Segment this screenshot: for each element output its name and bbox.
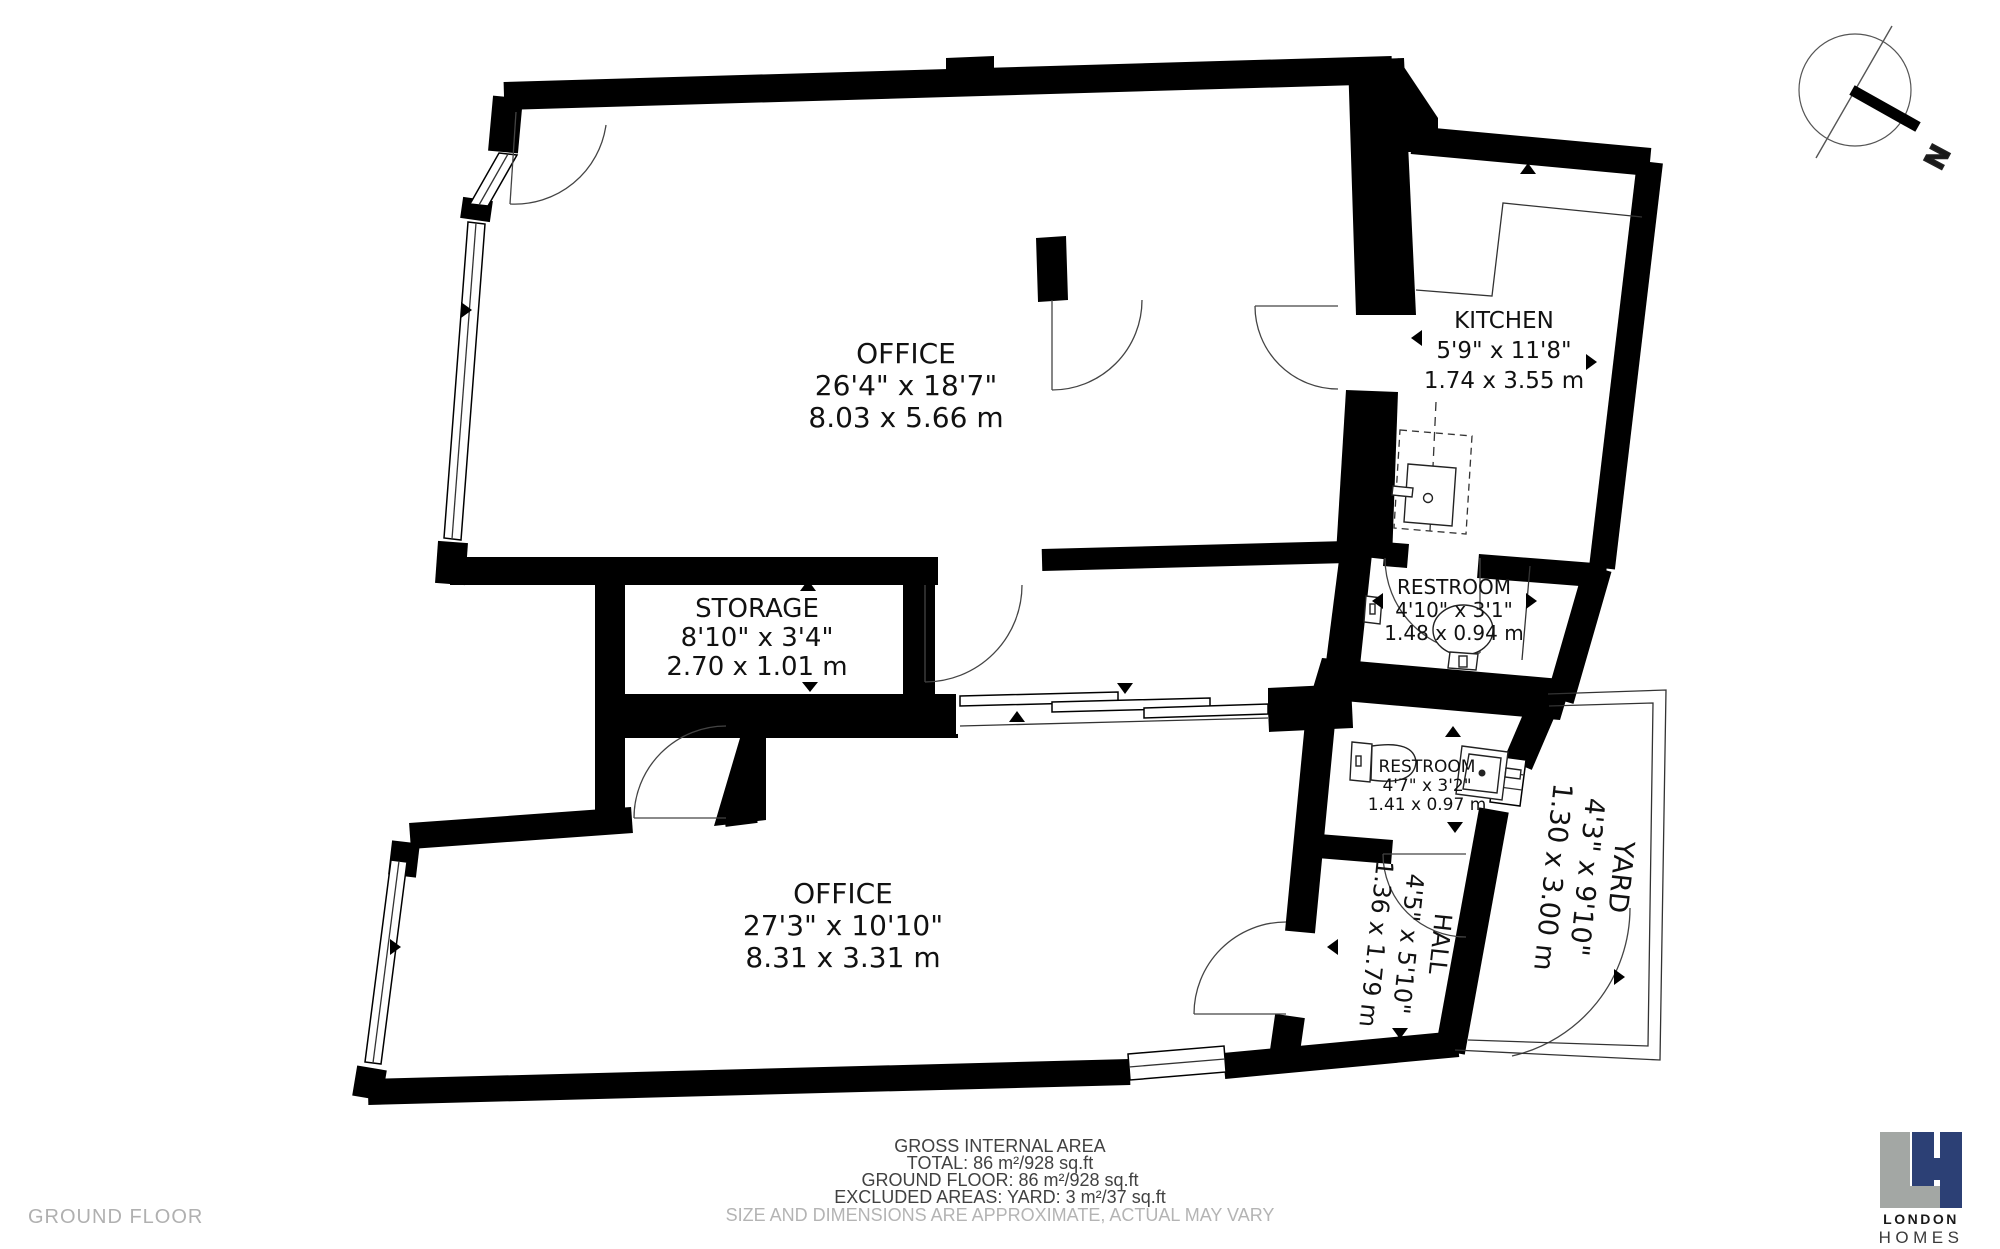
- room-office-top-name: OFFICE: [856, 337, 956, 370]
- window-icon: [365, 860, 407, 1064]
- door-arc-icon: [925, 585, 1022, 682]
- door-arc-icon: [1052, 300, 1142, 390]
- logo-london: LONDON: [1883, 1211, 1959, 1227]
- room-office-bottom-name: OFFICE: [793, 877, 893, 910]
- room-office-top-metric: 8.03 x 5.66 m: [808, 401, 1003, 434]
- compass-icon: N: [1799, 26, 1956, 175]
- door-arc-icon: [634, 726, 726, 818]
- room-yard-name: YARD: [1601, 838, 1640, 914]
- area-summary: GROSS INTERNAL AREA TOTAL: 86 m²/928 sq.…: [726, 1136, 1275, 1225]
- room-restroom-upper-name: RESTROOM: [1397, 575, 1511, 599]
- area-summary-disclaimer: SIZE AND DIMENSIONS ARE APPROXIMATE, ACT…: [726, 1205, 1275, 1225]
- door-arc-icon: [1194, 922, 1286, 1014]
- sliding-door-icon: [956, 682, 1268, 734]
- door-arc-icon: [510, 112, 606, 204]
- window-icon: [1128, 1046, 1226, 1080]
- room-office-top-imperial: 26'4" x 18'7": [815, 369, 997, 402]
- room-storage-imperial: 8'10" x 3'4": [681, 623, 834, 653]
- room-restroom-lower-name: RESTROOM: [1379, 757, 1476, 777]
- room-kitchen-name: KITCHEN: [1454, 308, 1554, 334]
- room-restroom-upper-metric: 1.48 x 0.94 m: [1384, 621, 1523, 645]
- room-restroom-lower-metric: 1.41 x 0.97 m: [1368, 795, 1487, 815]
- room-labels: OFFICE 26'4" x 18'7" 8.03 x 5.66 m KITCH…: [666, 308, 1639, 1029]
- floor-plan-canvas: OFFICE 26'4" x 18'7" 8.03 x 5.66 m KITCH…: [0, 0, 2000, 1249]
- logo-monogram-icon: [1880, 1132, 1962, 1208]
- area-summary-excluded: EXCLUDED AREAS: YARD: 3 m²/37 sq.ft: [834, 1187, 1165, 1207]
- room-restroom-lower-imperial: 4'7" x 3'2": [1382, 776, 1471, 796]
- london-homes-logo: LONDON HOMES: [1879, 1132, 1964, 1247]
- floor-label: GROUND FLOOR: [28, 1206, 203, 1228]
- compass-north-label: N: [1916, 138, 1956, 174]
- appliance-icon: [1392, 402, 1472, 534]
- door-arc-icon: [1255, 306, 1338, 389]
- room-storage-name: STORAGE: [695, 594, 819, 624]
- room-kitchen-imperial: 5'9" x 11'8": [1436, 338, 1571, 364]
- room-kitchen-metric: 1.74 x 3.55 m: [1424, 368, 1584, 394]
- room-storage-metric: 2.70 x 1.01 m: [666, 652, 847, 682]
- room-hall-name: HALL: [1423, 912, 1457, 976]
- room-office-bottom-metric: 8.31 x 3.31 m: [745, 941, 940, 974]
- window-icon: [444, 222, 485, 540]
- kitchen-counter-icon: [1416, 203, 1642, 296]
- floor-plan-page: OFFICE 26'4" x 18'7" 8.03 x 5.66 m KITCH…: [0, 0, 2000, 1249]
- logo-homes: HOMES: [1879, 1228, 1964, 1247]
- room-office-bottom-imperial: 27'3" x 10'10": [743, 909, 943, 942]
- room-restroom-upper-imperial: 4'10" x 3'1": [1395, 598, 1513, 622]
